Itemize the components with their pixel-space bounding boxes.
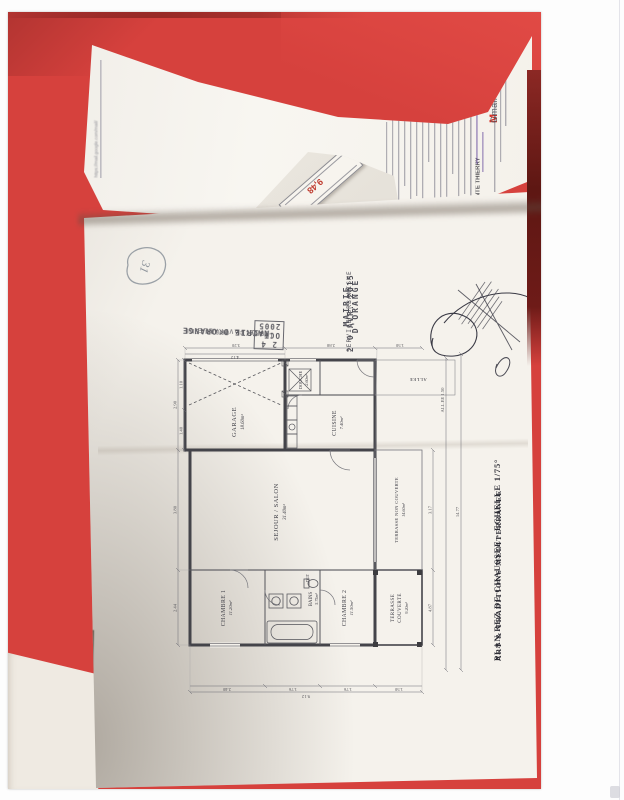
dim: 1.10 xyxy=(179,380,184,389)
room-label-allee: ALLEE xyxy=(409,377,427,382)
table-surface xyxy=(8,644,104,789)
room-area: 9.20m² xyxy=(404,601,409,613)
room-area: 7.40m² xyxy=(339,416,344,429)
room-label-douche: DOUCHE xyxy=(298,371,303,390)
room-label-dgt: DGT xyxy=(305,573,310,582)
dim: 14.77 xyxy=(455,506,460,517)
dim: 1.76 xyxy=(343,687,352,692)
dim: ALL.EE 1.50 xyxy=(440,387,445,413)
room-area: 2.60m² xyxy=(304,373,309,385)
dim: 4.12 xyxy=(230,355,239,360)
room-area: 31.40m² xyxy=(282,504,288,520)
dim: 9.12 xyxy=(301,694,310,699)
room-label-cuisine: CUISINE xyxy=(332,410,338,436)
app-panel-border xyxy=(619,0,620,800)
dim: 2.44 xyxy=(173,603,178,612)
room-label-terrasse-couverte2: COUVERTE xyxy=(398,593,403,623)
dim: 3.17 xyxy=(428,505,433,514)
scrollbar-fragment xyxy=(610,786,620,798)
dim: 2.40 xyxy=(222,687,231,692)
room-label-terrasse-nc: TERRASSE NON COUVERTE xyxy=(394,477,399,543)
dim: 1.40 xyxy=(179,426,184,435)
stamp-avis-favorable: MAIRIE D'ORANGE AVIS FAVORABLE LE 2 4 OC… xyxy=(173,274,271,337)
room-label-chambre2: CHAMBRE 2 xyxy=(342,590,348,627)
handwritten-circled-note: 31 xyxy=(118,243,172,291)
plan-subtitle: ART & TRADITIONS MEDITERRANEE xyxy=(494,489,503,661)
dim: 2.88 xyxy=(326,343,335,348)
floor-plan-drawing: 2.44 3.80 2.90 1.40 1.10 3.20 2.88 1.50 … xyxy=(170,340,470,700)
photo-of-documents: M Gmail Fwd : VENTE THIERRY https://mail… xyxy=(8,12,541,789)
room-label-sejour: SEJOUR / SALON xyxy=(273,483,280,541)
room-area: 11.50m² xyxy=(349,600,354,615)
dim: 1.50 xyxy=(395,343,404,348)
room-area: 11.20m² xyxy=(228,600,233,615)
room-label-terrasse-couverte: TERRASSE xyxy=(391,594,396,622)
plan-title-block: PLAN REZ DE CHAUSSEE - ECHELLE 1/75° ART… xyxy=(492,421,524,661)
room-area: 5.75m² xyxy=(314,592,319,604)
note-value: 31 xyxy=(137,258,154,274)
room-label-chambre1: CHAMBRE 1 xyxy=(221,590,227,627)
dim: 1.76 xyxy=(288,687,297,692)
dim: 2.90 xyxy=(173,400,178,409)
dim: 3.20 xyxy=(231,343,240,348)
dim: 3.80 xyxy=(173,505,178,514)
stamp-service-urbanisme: MAIRIE D'ORANGE 2 0 AVR. 2015 SERVICE UR… xyxy=(342,260,400,352)
room-label-garage: GARAGE xyxy=(231,407,238,437)
room-area: 14.60m² xyxy=(401,502,406,516)
dim: 1.50 xyxy=(394,687,403,692)
dim: 4.87 xyxy=(428,603,433,612)
folder-spine-shadow xyxy=(527,70,541,366)
room-area: 18.60m² xyxy=(240,414,246,430)
